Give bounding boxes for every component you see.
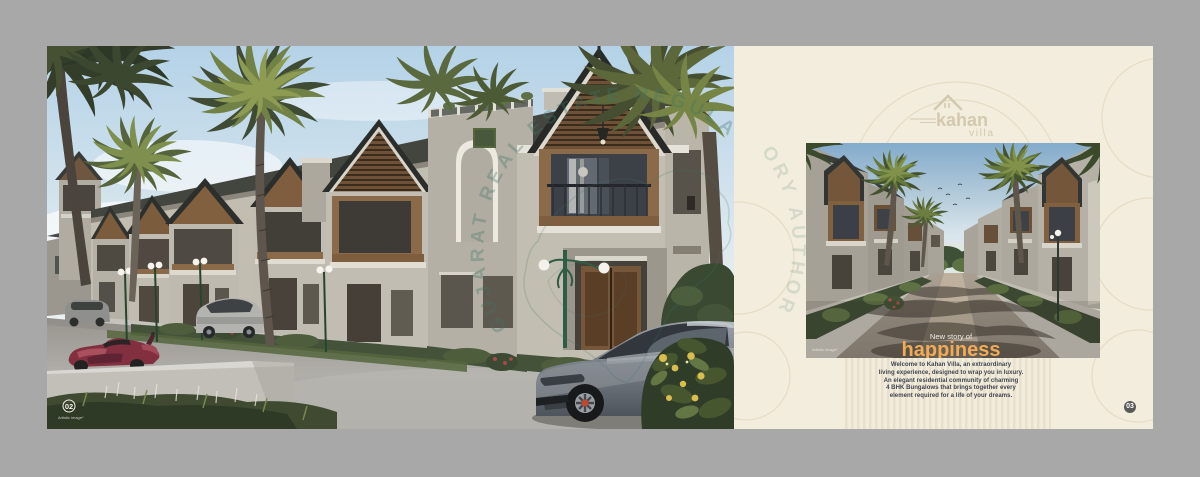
- svg-text:villa: villa: [969, 127, 995, 139]
- svg-text:ORY AUTHOR: ORY AUTHOR: [757, 142, 809, 319]
- svg-text:02: 02: [65, 402, 73, 411]
- svg-text:happiness: happiness: [902, 339, 1001, 358]
- svg-text:Artistic image*: Artistic image*: [812, 347, 838, 352]
- svg-text:Artistic image*: Artistic image*: [58, 415, 84, 420]
